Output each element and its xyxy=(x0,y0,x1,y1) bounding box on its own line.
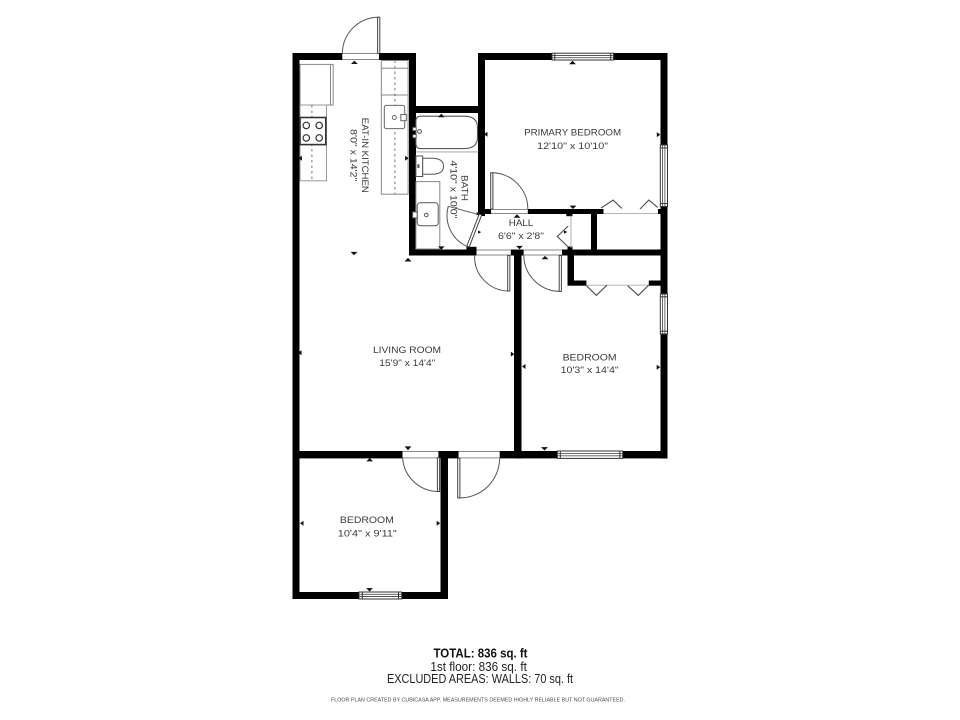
svg-text:HALL: HALL xyxy=(509,217,534,228)
svg-text:12'10" x 10'10": 12'10" x 10'10" xyxy=(537,140,608,151)
svg-text:8'0" x 14'2": 8'0" x 14'2" xyxy=(349,129,360,181)
svg-text:15'9" x 14'4": 15'9" x 14'4" xyxy=(379,357,435,368)
svg-text:10'3" x 14'4": 10'3" x 14'4" xyxy=(561,364,619,375)
svg-text:BEDROOM: BEDROOM xyxy=(340,514,394,525)
svg-text:BATH: BATH xyxy=(460,175,471,201)
svg-text:4'10" x 10'0": 4'10" x 10'0" xyxy=(448,160,459,218)
svg-text:6'6" x 2'8": 6'6" x 2'8" xyxy=(498,230,544,241)
svg-text:PRIMARY BEDROOM: PRIMARY BEDROOM xyxy=(524,126,621,137)
svg-text:BEDROOM: BEDROOM xyxy=(563,352,617,363)
svg-text:EXCLUDED AREAS: WALLS: 70 sq.: EXCLUDED AREAS: WALLS: 70 sq. ft xyxy=(387,671,573,686)
svg-text:10'4" x 9'11": 10'4" x 9'11" xyxy=(338,527,397,538)
svg-text:LIVING ROOM: LIVING ROOM xyxy=(373,344,441,355)
svg-text:EAT-IN KITCHEN: EAT-IN KITCHEN xyxy=(360,118,371,193)
svg-text:FLOOR PLAN CREATED BY CUBICASA: FLOOR PLAN CREATED BY CUBICASA APP. MEAS… xyxy=(331,698,625,704)
